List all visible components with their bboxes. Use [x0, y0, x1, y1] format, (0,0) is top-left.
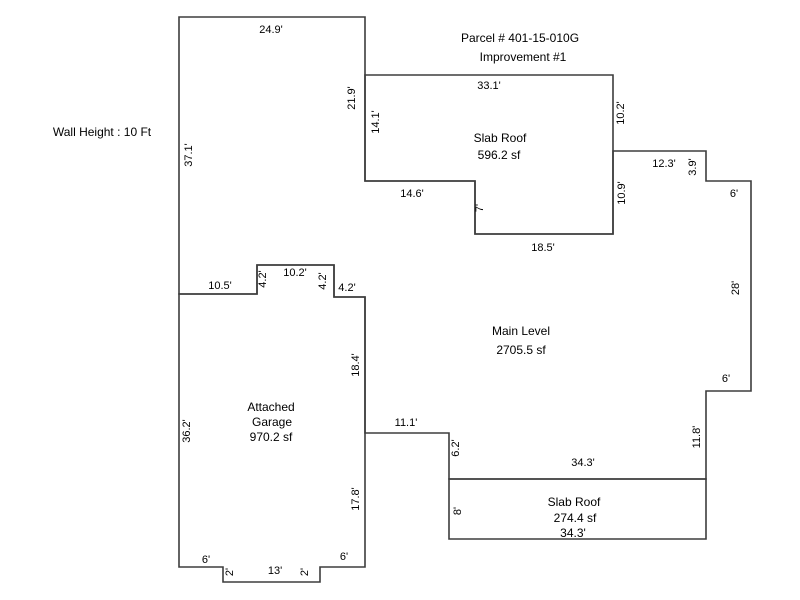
- dim-notch-4-2-left: 4.2': [257, 270, 269, 287]
- dim-main-right-upper: 21.9': [346, 86, 358, 110]
- slab-roof-lower-area: 274.4 sf: [554, 511, 597, 525]
- dim-main-bottom-34-3: 34.3': [571, 457, 595, 469]
- dim-garage-bottom-2-e: 2': [299, 568, 311, 576]
- dim-garage-bottom-6-w: 6': [202, 554, 210, 566]
- dim-notch-4-2-mid: 4.2': [317, 272, 329, 289]
- dim-main-top: 24.9': [259, 24, 283, 36]
- dim-notch-4-2-right: 4.2': [338, 282, 355, 294]
- dim-garage-top-10-5: 10.5': [208, 280, 232, 292]
- dim-main-ne-step-top: 12.3': [652, 158, 676, 170]
- dim-slab-upper-right1: 10.2': [615, 101, 627, 125]
- garage-area: 970.2 sf: [250, 430, 293, 444]
- dim-main-step-6-2: 6.2': [450, 439, 462, 456]
- slab-roof-upper-area: 596.2 sf: [478, 148, 521, 162]
- dim-main-ne-step-side: 3.9': [687, 158, 699, 175]
- slab-roof-lower-width: 34.3': [560, 526, 586, 540]
- main-level-name: Main Level: [492, 324, 550, 338]
- garage-name-line2: Garage: [252, 415, 292, 429]
- dim-main-right-lower: 11.8': [691, 426, 703, 449]
- dim-main-step-11-1: 11.1': [395, 417, 418, 429]
- wall-height-label: Wall Height : 10 Ft: [53, 125, 152, 139]
- dim-slab-upper-bottom2: 18.5': [531, 242, 555, 254]
- dim-main-ne-6: 6': [730, 188, 738, 200]
- dim-garage-right-upper: 18.4': [350, 353, 362, 377]
- dim-slab-upper-step: 7': [474, 204, 486, 212]
- main-level-area: 2705.5 sf: [496, 343, 546, 357]
- dim-main-left-upper: 37.1': [183, 143, 195, 167]
- dim-garage-bottom-2-w: 2': [224, 568, 236, 576]
- dim-slab-upper-right2: 10.9': [616, 181, 628, 205]
- garage-name-line1: Attached: [247, 400, 294, 414]
- appraisal-sketch-page: Parcel # 401-15-010GImprovement #1Wall H…: [0, 0, 800, 600]
- dim-notch-10-2: 10.2': [283, 267, 307, 279]
- dim-garage-bottom-13: 13': [268, 565, 282, 577]
- improvement-number-label: Improvement #1: [480, 50, 567, 64]
- dim-garage-bottom-6-e: 6': [340, 551, 348, 563]
- dim-main-east-6: 6': [722, 373, 730, 385]
- dim-slab-upper-top: 33.1': [477, 80, 501, 92]
- floor-plan-svg: Parcel # 401-15-010GImprovement #1Wall H…: [0, 0, 800, 600]
- dim-garage-right-lower: 17.8': [350, 487, 362, 511]
- dim-main-right-28: 28': [730, 281, 742, 295]
- dim-garage-left: 36.2': [181, 419, 193, 443]
- dim-slab-upper-left: 14.1': [370, 110, 382, 134]
- slab-roof-upper-name: Slab Roof: [474, 131, 527, 145]
- dim-slab-upper-bottom1: 14.6': [400, 188, 424, 200]
- slab-roof-lower-name: Slab Roof: [548, 495, 601, 509]
- dim-slab-lower-left: 8': [452, 507, 464, 515]
- parcel-number-label: Parcel # 401-15-010G: [461, 31, 579, 45]
